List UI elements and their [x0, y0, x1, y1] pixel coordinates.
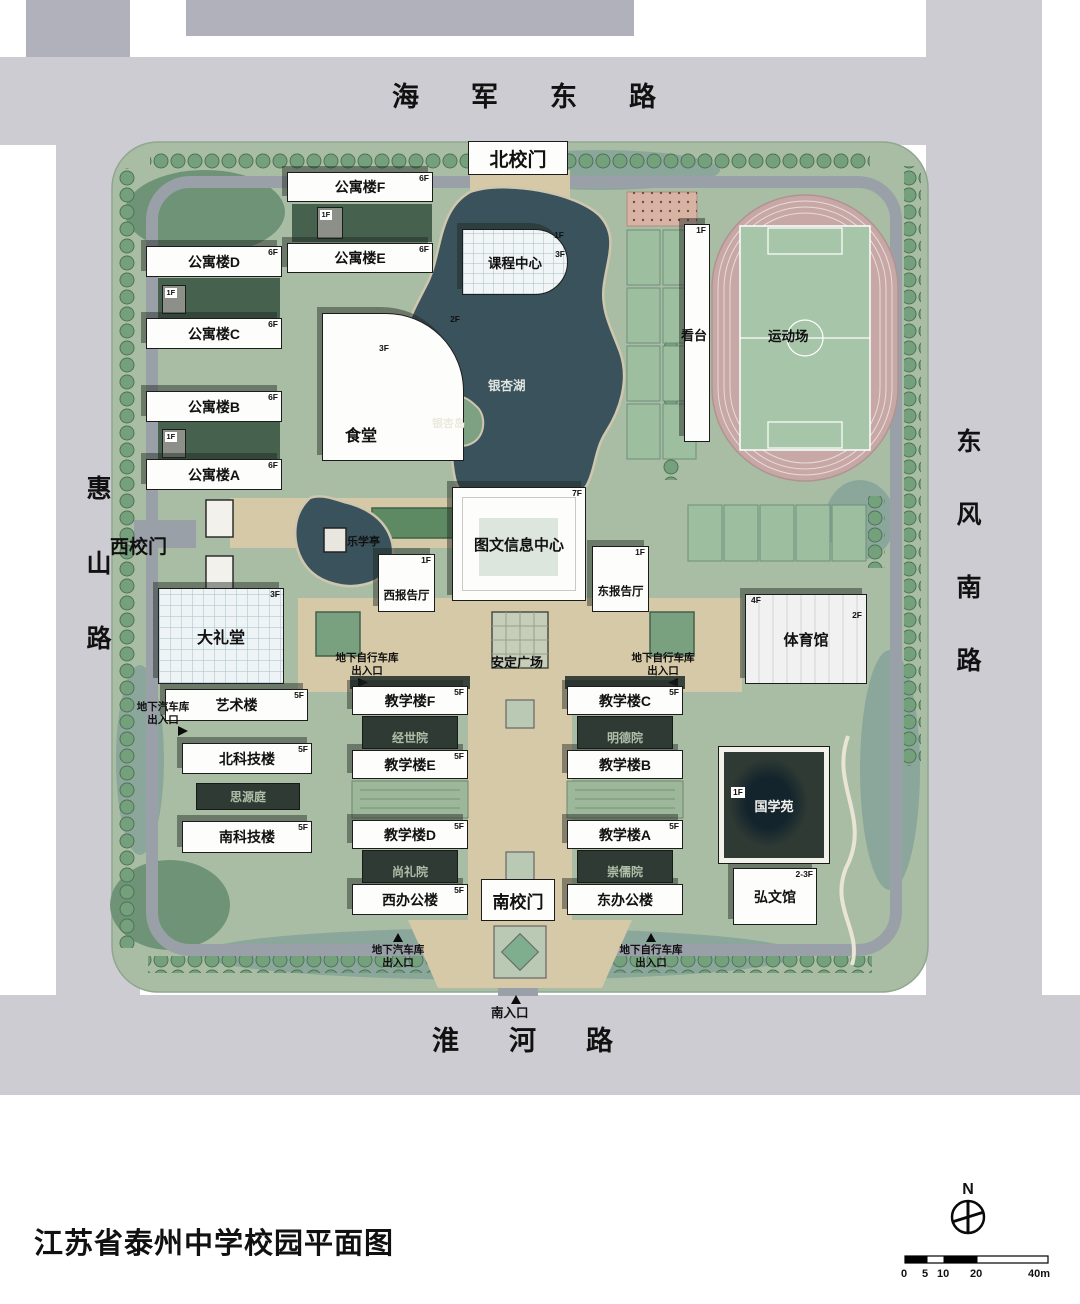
building-label: 教学楼F: [385, 691, 436, 711]
road-label-south: 淮河路: [432, 1028, 663, 1055]
pavilion-label: 乐学亭: [347, 537, 380, 548]
floors-badge: 6F: [268, 248, 278, 257]
south-entrance-label: 南入口: [491, 1006, 529, 1022]
building-label: 西办公楼: [382, 890, 438, 910]
building-label: 西报告厅: [384, 587, 430, 603]
building-label: 大礼堂: [197, 624, 245, 648]
building-hongwen-hall: 弘文馆2-3F: [733, 868, 817, 925]
courtyard-label: 崇儒院: [607, 863, 643, 880]
scale-label: 5: [922, 1268, 928, 1280]
building-label: 公寓楼E: [334, 248, 385, 268]
road-label-west: 惠山路: [84, 475, 109, 700]
garage-label: 地下汽车库: [372, 944, 425, 956]
floors-badge: 1F: [165, 432, 177, 442]
floors-badge: 3F: [555, 250, 565, 259]
building-apartment-b: 公寓楼B6F: [146, 391, 282, 422]
entrance-label: 出入口: [382, 957, 414, 969]
arrow-up-icon: [646, 933, 656, 942]
entrance-label: 出入口: [147, 714, 179, 726]
garage-label: 地下汽车库: [137, 701, 190, 713]
courtyard-label: 国学苑: [754, 796, 793, 815]
apartment-annex: 1F: [162, 285, 186, 314]
road-label-north: 海军东路: [392, 84, 708, 111]
campus-plan: 海军东路 淮河路 惠山路 东风南路 北校门 南校门 西校门 1F 1F 1F 公…: [0, 0, 1080, 1304]
building-label: 教学楼D: [384, 825, 436, 845]
building-label: 东报告厅: [598, 583, 644, 599]
floors-badge: 5F: [454, 688, 464, 697]
building-teaching-b: 教学楼B: [567, 750, 683, 779]
entrance-label: 出入口: [635, 957, 667, 969]
plaza-label: 安定广场: [491, 656, 543, 669]
floors-badge: 6F: [419, 174, 429, 183]
floors-badge: 5F: [454, 822, 464, 831]
building-south-science: 南科技楼5F: [182, 821, 312, 853]
floors-badge: 3F: [379, 344, 389, 353]
road-label-east: 东风南路: [954, 428, 979, 720]
courtyard-label: 尚礼院: [392, 863, 428, 880]
building-label: 东办公楼: [597, 890, 653, 910]
building-label: 公寓楼D: [188, 252, 240, 272]
floors-badge: 6F: [268, 461, 278, 470]
floors-badge: 7F: [572, 489, 582, 498]
building-apartment-e: 公寓楼E6F: [287, 243, 433, 273]
building-label: 课程中心: [488, 252, 542, 272]
courtyard-label: 思源庭: [230, 788, 266, 805]
floors-badge: 6F: [419, 245, 429, 254]
arrow-up-icon: [393, 933, 403, 942]
entrance-label: 出入口: [647, 665, 679, 677]
courtyard-mingde: 明德院: [577, 716, 673, 749]
building-west-lecture-hall: 西报告厅1F: [378, 554, 435, 612]
south-gate: 南校门: [481, 879, 555, 921]
garage-label: 地下自行车库: [632, 652, 695, 664]
building-library-info-center: 图文信息中心7F: [452, 487, 586, 601]
building-auditorium: 大礼堂3F: [158, 588, 284, 684]
floors-badge: 5F: [669, 688, 679, 697]
island-label: 银杏岛: [432, 419, 465, 430]
floors-badge: 5F: [454, 886, 464, 895]
scale-bar: [905, 1256, 1048, 1263]
building-teaching-e: 教学楼E5F: [352, 750, 468, 779]
floors-badge: 1F: [320, 210, 332, 220]
building-label: 公寓楼C: [188, 324, 240, 344]
courtyard-label: 经世院: [392, 729, 428, 746]
building-label: 图文信息中心: [474, 534, 564, 555]
building-west-office: 西办公楼5F: [352, 884, 468, 915]
building-apartment-a: 公寓楼A6F: [146, 459, 282, 490]
building-teaching-c: 教学楼C5F: [567, 686, 683, 715]
entrance-label: 出入口: [351, 665, 383, 677]
floors-badge: 5F: [454, 752, 464, 761]
building-label: 体育馆: [783, 629, 828, 650]
scale-label: 20: [970, 1268, 982, 1280]
floors-badge: 1F: [554, 231, 564, 240]
building-label: 北科技楼: [219, 749, 275, 769]
building-label: 公寓楼B: [188, 397, 240, 417]
garage-label: 地下自行车库: [620, 944, 683, 956]
building-label: 南科技楼: [219, 827, 275, 847]
garage-label: 地下自行车库: [336, 652, 399, 664]
grandstand-label: 看台: [681, 329, 707, 342]
floors-badge: 1F: [165, 288, 177, 298]
building-label: 教学楼E: [384, 755, 435, 775]
floors-badge: 2F: [450, 315, 460, 324]
underground-car-garage-entrance-south: 地下汽车库出入口: [355, 944, 441, 970]
floors-badge: 5F: [669, 822, 679, 831]
floors-badge: 5F: [298, 745, 308, 754]
building-teaching-f: 教学楼F5F: [352, 686, 468, 715]
building-label: 艺术楼: [216, 695, 258, 715]
building-apartment-c: 公寓楼C6F: [146, 318, 282, 349]
courtyard-jingshi: 经世院: [362, 716, 458, 749]
courtyard-label: 明德院: [607, 729, 643, 746]
floors-badge: 6F: [268, 393, 278, 402]
building-apartment-f: 公寓楼F6F: [287, 172, 433, 202]
scale-label: 40m: [1028, 1268, 1050, 1280]
arrow-up-icon: [511, 995, 521, 1004]
courtyard-siyuan: 思源庭: [196, 783, 300, 810]
floors-badge: 5F: [298, 823, 308, 832]
courtyard-guoxue: 国学苑1F: [718, 746, 830, 864]
building-course-center: 课程中心3F1F: [462, 229, 568, 295]
floors-badge: 1F: [731, 787, 745, 798]
floors-badge: 5F: [294, 691, 304, 700]
basketball-courts-south: [688, 505, 866, 561]
floors-badge: 2-3F: [796, 870, 813, 879]
floors-badge: 3F: [270, 590, 280, 599]
building-label: 教学楼B: [599, 755, 651, 775]
underground-car-garage-entrance-west: 地下汽车库出入口: [120, 701, 206, 727]
building-label: 公寓楼A: [188, 465, 240, 485]
lake-label: 银杏湖: [488, 380, 526, 393]
building-gymnasium: 体育馆4F2F: [745, 594, 867, 684]
apartment-annex: 1F: [162, 429, 186, 458]
compass-north-label: N: [958, 1182, 978, 1198]
building-label: 教学楼A: [599, 825, 651, 845]
building-apartment-d: 公寓楼D6F: [146, 246, 282, 277]
sports-field-label: 运动场: [768, 330, 809, 344]
building-teaching-d: 教学楼D5F: [352, 820, 468, 849]
floors-badge: 1F: [635, 548, 645, 557]
underground-bike-garage-entrance-center-east: 地下自行车库出入口: [620, 652, 706, 678]
underground-bike-garage-entrance-center-west: 地下自行车库出入口: [324, 652, 410, 678]
building-label: 公寓楼F: [335, 177, 386, 197]
courtyard-shangli: 尚礼院: [362, 850, 458, 883]
floors-badge: 1F: [421, 556, 431, 565]
building-label: 教学楼C: [599, 691, 651, 711]
scale-label: 0: [901, 1268, 907, 1280]
north-gate: 北校门: [468, 141, 568, 175]
building-label: 弘文馆: [754, 887, 796, 907]
scale-label: 10: [937, 1268, 949, 1280]
page-title: 江苏省泰州中学校园平面图: [34, 1230, 394, 1259]
building-north-science: 北科技楼5F: [182, 743, 312, 774]
floors-badge: 6F: [268, 320, 278, 329]
building-label: 食堂: [345, 422, 377, 446]
underground-bike-garage-entrance-south: 地下自行车库出入口: [608, 944, 694, 970]
north-gate-label: 北校门: [489, 145, 546, 172]
building-teaching-a: 教学楼A5F: [567, 820, 683, 849]
floors-badge: 1F: [696, 226, 706, 235]
floors-badge: 2F: [852, 611, 862, 620]
floors-badge: 4F: [751, 596, 761, 605]
building-east-office: 东办公楼: [567, 884, 683, 915]
south-gate-label: 南校门: [493, 888, 544, 913]
courtyard-chongru: 崇儒院: [577, 850, 673, 883]
west-gate-label: 西校门: [110, 538, 167, 557]
building-east-lecture-hall: 东报告厅1F: [592, 546, 649, 612]
apartment-annex: 1F: [317, 207, 343, 239]
